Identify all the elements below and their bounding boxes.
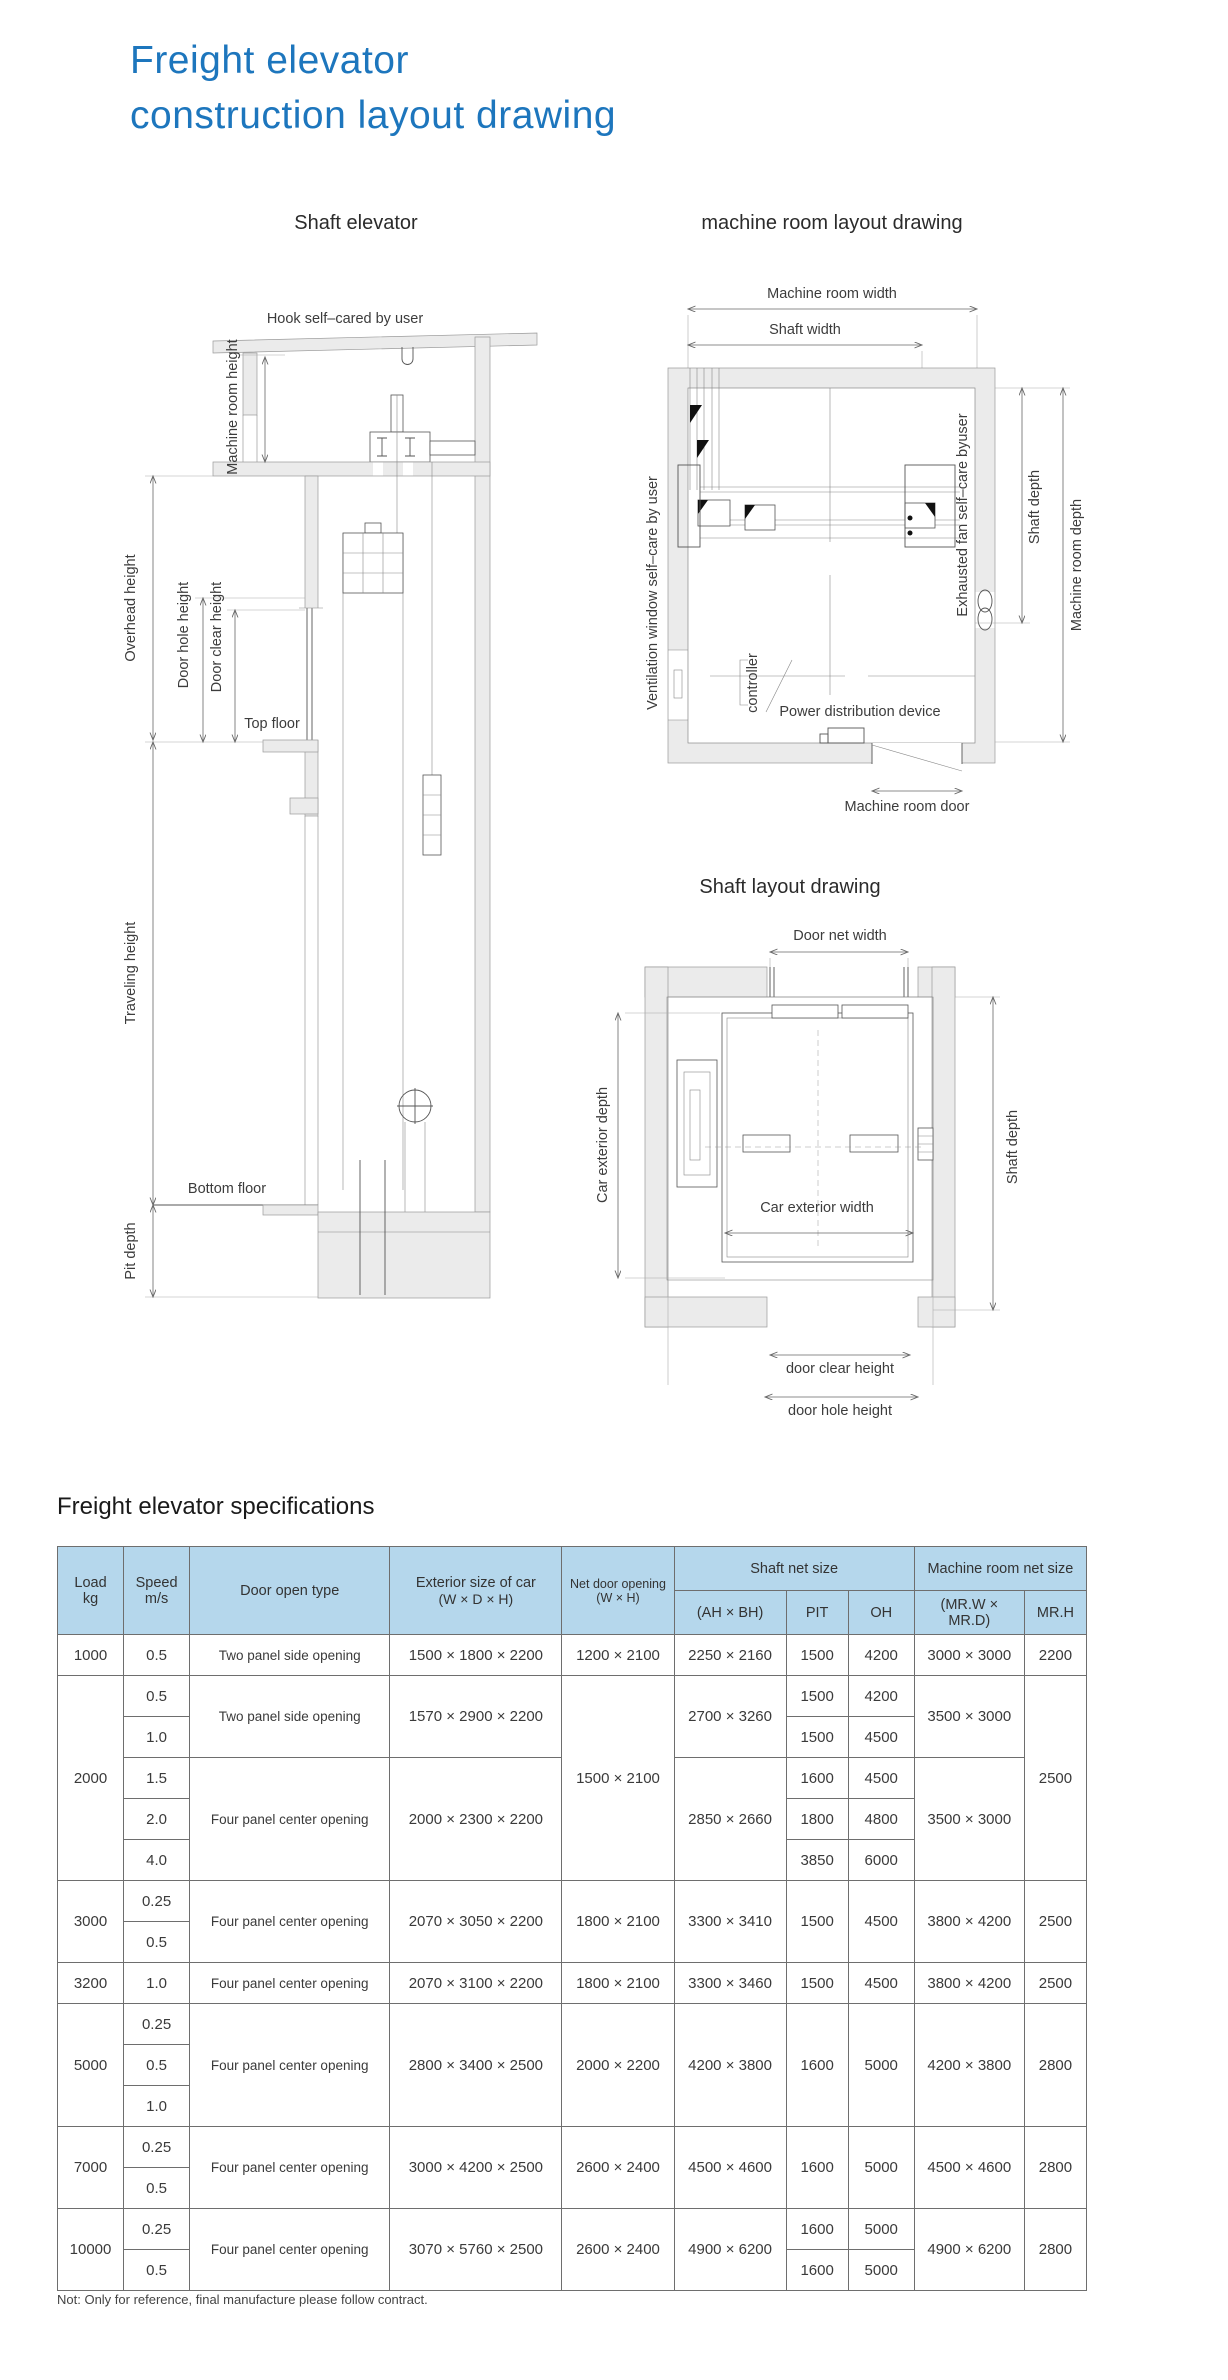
spec-cell: 4500 × 4600 [674,2127,786,2209]
spec-cell: 5000 [848,2004,914,2127]
spec-cell: 2200 [1024,1635,1086,1676]
spec-cell: 2700 × 3260 [674,1676,786,1758]
table-row: 20000.5Two panel side opening1570 × 2900… [58,1676,1087,1717]
shaft-elevator-diagram: Hook self–cared by user [85,295,565,1305]
spec-cell: 1570 × 2900 × 2200 [390,1676,562,1758]
col-mrwd: (MR.W × MR.D) [914,1591,1024,1635]
hook-label: Hook self–cared by user [267,311,424,327]
spec-cell: 4800 [848,1799,914,1840]
col-load: Loadkg [58,1547,124,1635]
table-row: 70000.25Four panel center opening3000 × … [58,2127,1087,2168]
door-net-width-label: Door net width [793,928,887,944]
table-row: 30000.25Four panel center opening2070 × … [58,1881,1087,1922]
spec-cell: 7000 [58,2127,124,2209]
spec-cell: 3500 × 3000 [914,1758,1024,1881]
spec-cell: 0.5 [124,1922,190,1963]
spec-cell: 1000 [58,1635,124,1676]
spec-cell: Four panel center opening [190,1881,390,1963]
spec-cell: 2800 [1024,2127,1086,2209]
machine-room-heading: machine room layout drawing [672,212,992,235]
door-clear-height-plan-label: door clear height [786,1361,894,1377]
spec-cell: 1800 [786,1799,848,1840]
table-row: 32001.0Four panel center opening2070 × 3… [58,1963,1087,2004]
spec-cell: 4500 [848,1758,914,1799]
spec-cell: 5000 [58,2004,124,2127]
door-hole-height-label: Door hole height [176,582,192,688]
spec-cell: 5000 [848,2250,914,2291]
spec-cell: 3800 × 4200 [914,1963,1024,2004]
spec-cell: 2500 [1024,1963,1086,2004]
spec-cell: 1.5 [124,1758,190,1799]
spec-table-body: 10000.5Two panel side opening1500 × 1800… [58,1635,1087,2291]
bottom-floor-slab [263,1205,318,1215]
car-exterior-depth-label: Car exterior depth [595,1087,611,1203]
spec-cell: 1600 [786,2250,848,2291]
spec-cell: 1200 × 2100 [562,1635,674,1676]
col-ahbh: (AH × BH) [674,1591,786,1635]
spec-cell: 2800 [1024,2004,1086,2127]
machine-room-height-label: Machine room height [225,339,241,474]
spec-cell: 2070 × 3050 × 2200 [390,1881,562,1963]
page: Freight elevator construction layout dra… [0,0,1228,2380]
spec-cell: Four panel center opening [190,2209,390,2291]
shaft-depth-plan-label: Shaft depth [1005,1110,1021,1184]
page-title-line2: construction layout drawing [130,88,616,143]
spec-cell: Four panel center opening [190,1758,390,1881]
page-title-line1: Freight elevator [130,33,616,88]
spec-cell: 2800 × 3400 × 2500 [390,2004,562,2127]
spec-cell: 1500 [786,1963,848,2004]
spec-cell: 0.5 [124,2250,190,2291]
col-mrh: MR.H [1024,1591,1086,1635]
spec-cell: 4200 [848,1635,914,1676]
machine-floor-slab [213,462,490,476]
spec-cell: 1600 [786,2127,848,2209]
door-panel [772,1005,838,1018]
spec-cell: 0.5 [124,1676,190,1717]
landing-slab [290,798,318,814]
top-floor-label: Top floor [244,716,300,732]
spec-cell: Four panel center opening [190,2004,390,2127]
machine-bed [430,441,475,455]
spec-cell: 1500 × 2100 [562,1676,674,1881]
spec-cell: 1600 [786,2004,848,2127]
spec-cell: Two panel side opening [190,1676,390,1758]
power-device-label: Power distribution device [779,704,940,720]
spec-cell: 3000 × 3000 [914,1635,1024,1676]
table-row: 50000.25Four panel center opening2800 × … [58,2004,1087,2045]
bottom-floor-label: Bottom floor [188,1181,266,1197]
spec-cell: 10000 [58,2209,124,2291]
spec-cell: 0.25 [124,2004,190,2045]
spec-cell: 0.5 [124,2045,190,2086]
spec-cell: 3200 [58,1963,124,2004]
door-hole-height-plan-label: door hole height [788,1403,892,1419]
spec-cell: 4900 × 6200 [674,2209,786,2291]
spec-cell: 1500 [786,1717,848,1758]
spec-cell: 2800 [1024,2209,1086,2291]
counterweight-plan [677,1060,717,1187]
spec-cell: 4900 × 6200 [914,2209,1024,2291]
shaft-elevator-heading: Shaft elevator [236,212,476,235]
spec-cell: 3850 [786,1840,848,1881]
shaft-width-label: Shaft width [769,322,841,338]
col-speed: Speedm/s [124,1547,190,1635]
spec-cell: 0.5 [124,1635,190,1676]
elevator-car [343,533,403,593]
door-clear-height-label: Door clear height [209,582,225,692]
spec-cell: 3300 × 3460 [674,1963,786,2004]
machine-room-diagram: Machine room width Shaft width Machine r… [620,275,1100,835]
spec-cell: 3500 × 3000 [914,1676,1024,1758]
col-net-door: Net door opening(W × H) [562,1547,674,1635]
spec-cell: 1500 × 1800 × 2200 [390,1635,562,1676]
hook-icon [402,347,413,365]
spec-cell: 1500 [786,1676,848,1717]
spec-cell: Two panel side opening [190,1635,390,1676]
spec-cell: 4500 [848,1963,914,2004]
col-exterior: Exterior size of car(W × D × H) [390,1547,562,1635]
group-shaft-net: Shaft net size [674,1547,914,1591]
spec-cell: 2600 × 2400 [562,2127,674,2209]
spec-cell: 4200 × 3800 [674,2004,786,2127]
spec-cell: 3070 × 5760 × 2500 [390,2209,562,2291]
spec-cell: 2500 [1024,1676,1086,1881]
spec-cell: 3800 × 4200 [914,1881,1024,1963]
page-title: Freight elevator construction layout dra… [130,33,616,143]
pit-floor [318,1212,490,1298]
spec-cell: 1500 [786,1635,848,1676]
spec-cell: 2000 × 2200 [562,2004,674,2127]
pit-depth-label: Pit depth [123,1222,139,1279]
col-door-type: Door open type [190,1547,390,1635]
spec-cell: 6000 [848,1840,914,1881]
spec-cell: 1500 [786,1881,848,1963]
spec-cell: 2.0 [124,1799,190,1840]
table-row: 100000.25Four panel center opening3070 ×… [58,2209,1087,2250]
spec-table: Loadkg Speedm/s Door open type Exterior … [57,1546,1087,2291]
spec-cell: 0.5 [124,2168,190,2209]
spec-cell: 5000 [848,2127,914,2209]
shaft-plan-diagram: Door net width Car exterior wid [595,860,1055,1435]
spec-cell: 1600 [786,2209,848,2250]
note: Not: Only for reference, final manufactu… [57,2292,428,2307]
spec-cell: 1.0 [124,1963,190,2004]
spec-cell: 2850 × 2660 [674,1758,786,1881]
car-exterior-width-label: Car exterior width [760,1200,874,1216]
spec-cell: Four panel center opening [190,2127,390,2209]
spec-cell: 2250 × 2160 [674,1635,786,1676]
spec-cell: 2600 × 2400 [562,2209,674,2291]
spec-cell: 4500 [848,1717,914,1758]
machine-room-depth-label: Machine room depth [1069,499,1085,631]
spec-cell: 0.25 [124,1881,190,1922]
door-panel [842,1005,908,1018]
spec-cell: 3000 [58,1881,124,1963]
spec-cell: 2500 [1024,1881,1086,1963]
spec-cell: 1800 × 2100 [562,1963,674,2004]
spec-cell: 1.0 [124,1717,190,1758]
spec-cell: 2000 [58,1676,124,1881]
controller-label: controller [745,653,761,713]
spec-cell: 0.25 [124,2209,190,2250]
group-machine-room: Machine room net size [914,1547,1086,1591]
machine-room-door-label: Machine room door [845,799,970,815]
spec-cell: 5000 [848,2209,914,2250]
spec-cell: 3300 × 3410 [674,1881,786,1963]
spec-cell: 1800 × 2100 [562,1881,674,1963]
spec-cell: 2070 × 3100 × 2200 [390,1963,562,2004]
spec-title: Freight elevator specifications [57,1493,374,1521]
spec-cell: 2000 × 2300 × 2200 [390,1758,562,1881]
spec-cell: 4.0 [124,1840,190,1881]
spec-cell: 1.0 [124,2086,190,2127]
spec-cell: 4500 × 4600 [914,2127,1024,2209]
spec-cell: 4200 [848,1676,914,1717]
spec-cell: 1600 [786,1758,848,1799]
ventilation-window-label: Ventilation window self–care by user [645,476,661,710]
traveling-height-label: Traveling height [123,922,139,1025]
header-row-1: Loadkg Speedm/s Door open type Exterior … [58,1547,1087,1591]
col-pit: PIT [786,1591,848,1635]
col-oh: OH [848,1591,914,1635]
spec-cell: 0.25 [124,2127,190,2168]
exhaust-fan-label: Exhausted fan self–care byuser [955,413,971,616]
spec-cell: Four panel center opening [190,1963,390,2004]
table-row: 10000.5Two panel side opening1500 × 1800… [58,1635,1087,1676]
shaft-depth-label: Shaft depth [1027,470,1043,544]
machine-room-width-label: Machine room width [767,286,897,302]
top-floor-slab [263,740,318,752]
spec-cell: 4200 × 3800 [914,2004,1024,2127]
spec-cell: 4500 [848,1881,914,1963]
left-wall [243,353,257,415]
spec-cell: 3000 × 4200 × 2500 [390,2127,562,2209]
overhead-height-label: Overhead height [123,554,139,661]
shaft-walls [645,967,668,1327]
hoist-machine [370,432,430,462]
